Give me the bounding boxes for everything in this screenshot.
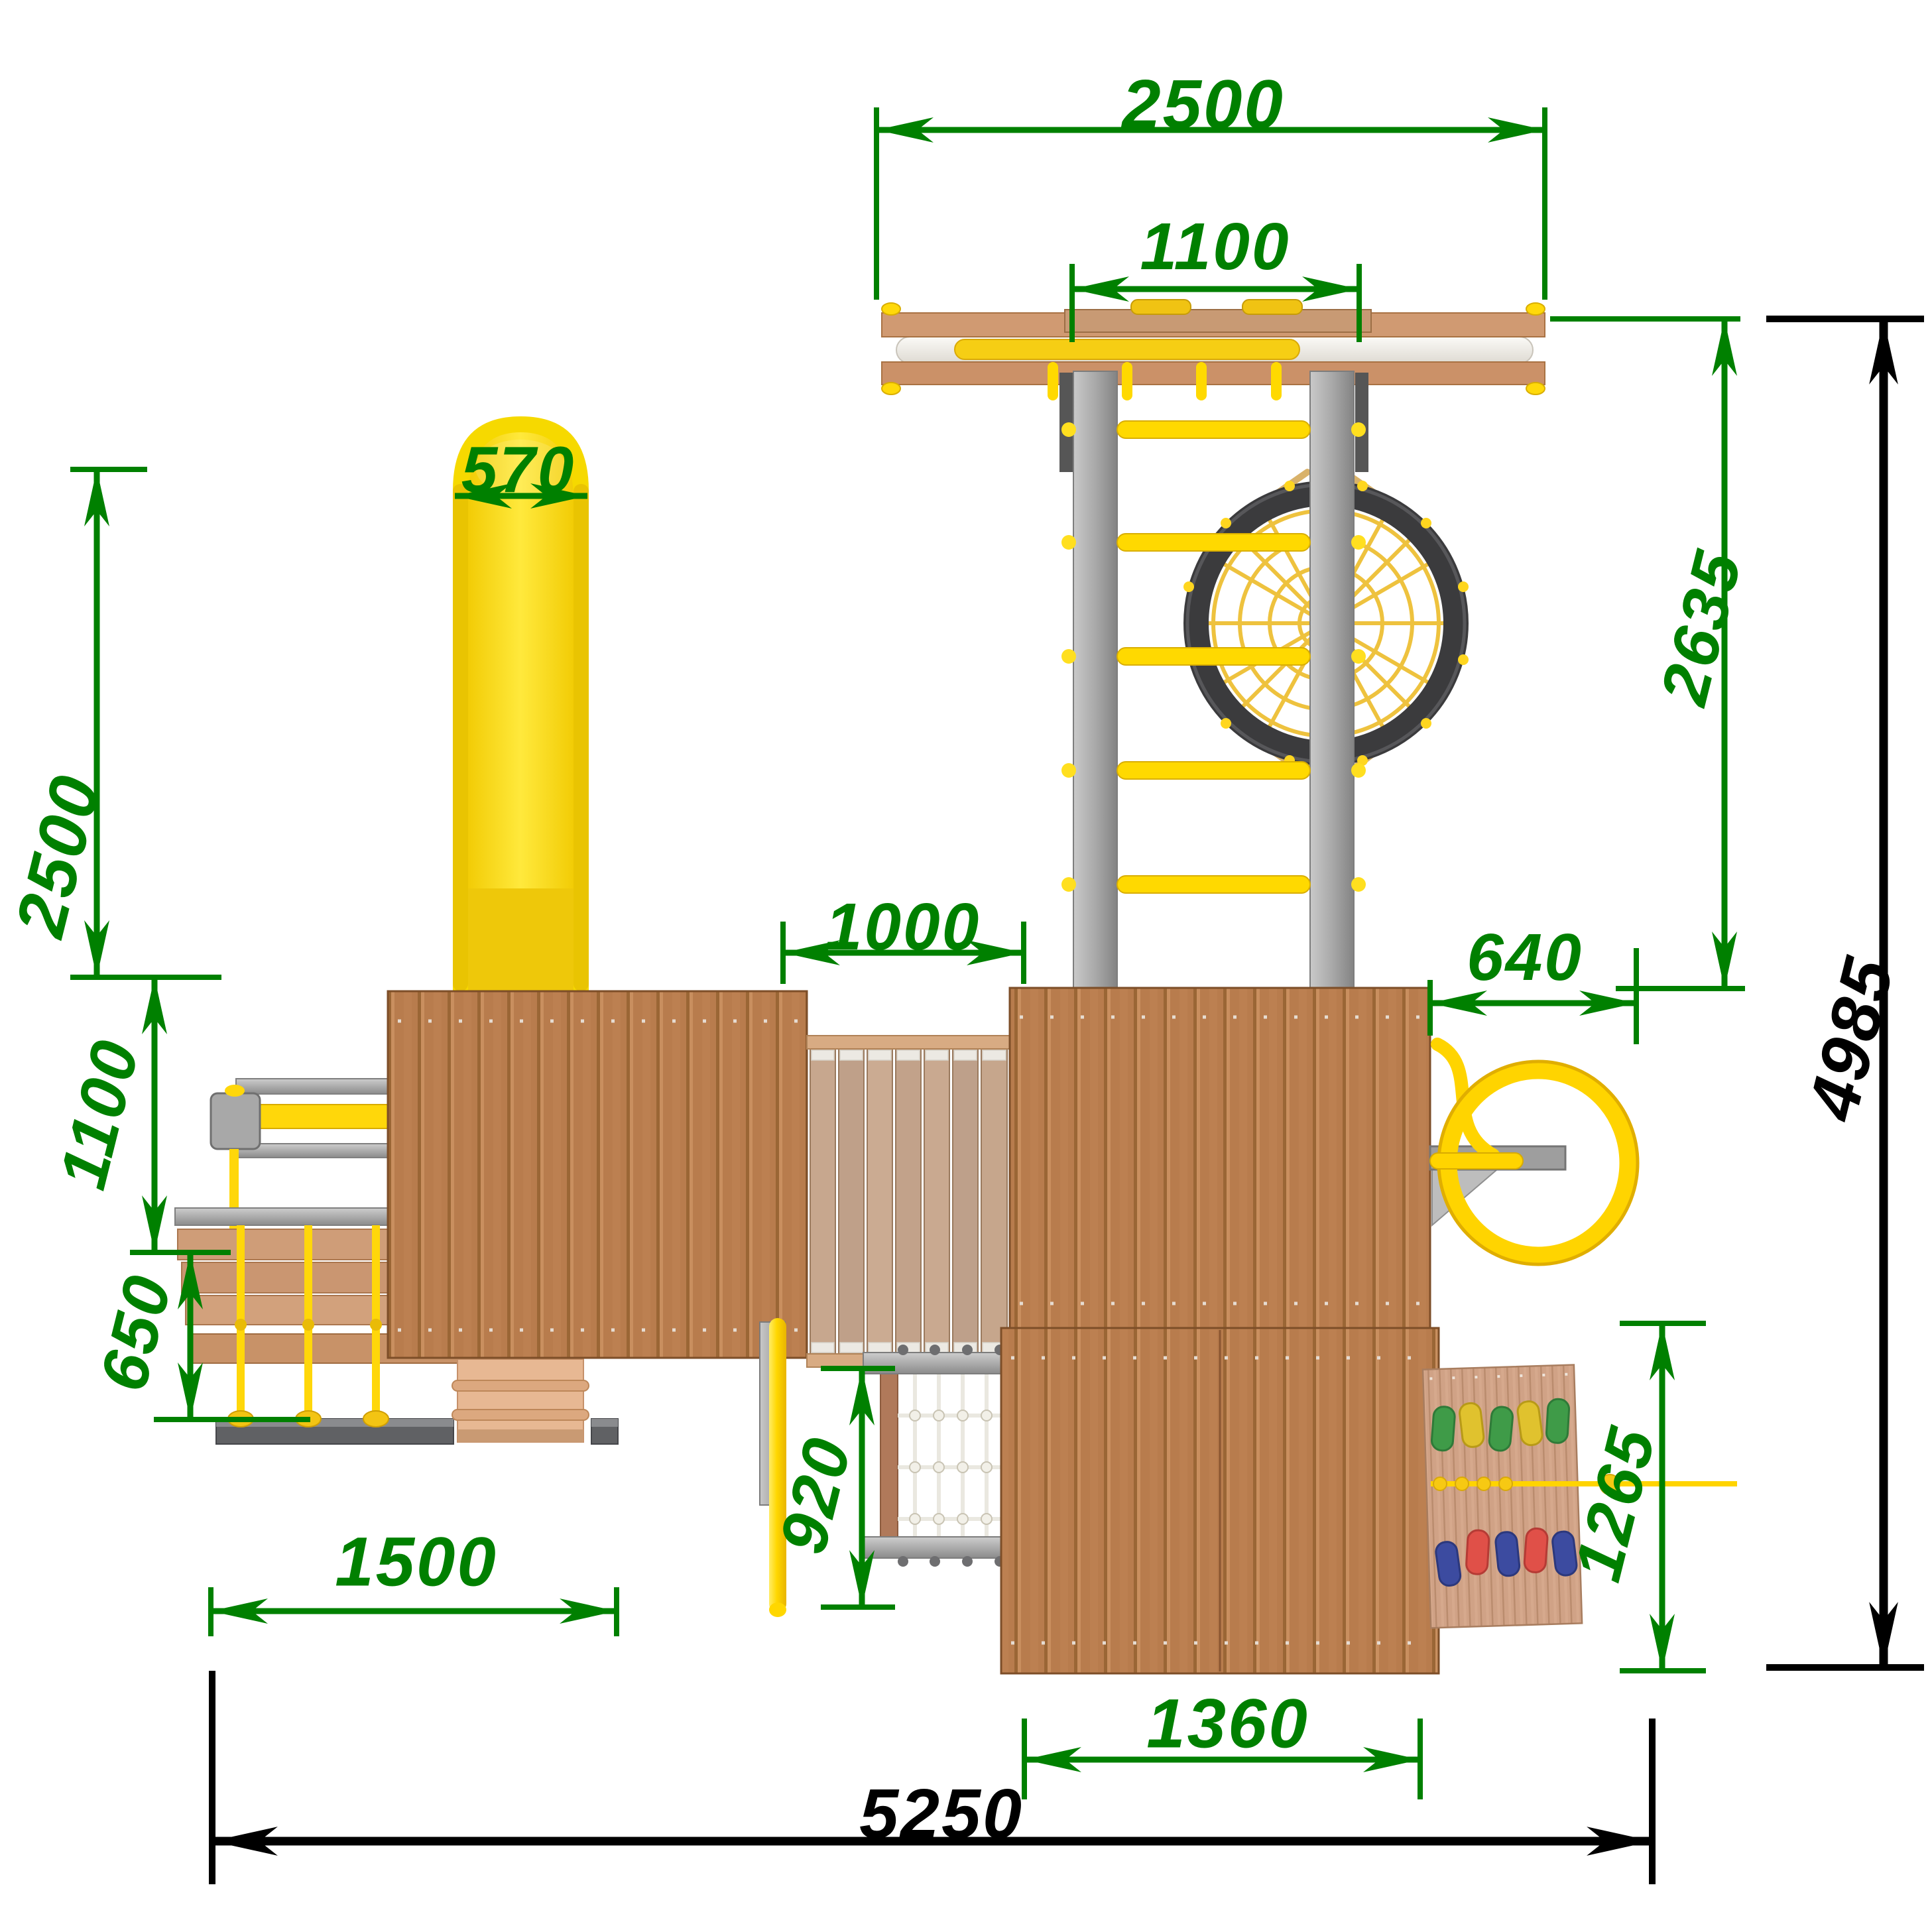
dimension-overall-width: 5250	[212, 1671, 1652, 1884]
fireman-pole	[760, 1318, 786, 1617]
dimension-left-depth: 2500	[1, 469, 147, 977]
dimension-label-ladder-depth: 2635	[1646, 543, 1756, 713]
ladder-top-rung	[955, 339, 1299, 359]
ramp-cleat	[452, 1380, 589, 1391]
swing-bracket-cap	[225, 1085, 245, 1097]
dimension-overall-depth: 4985	[1766, 319, 1924, 1667]
swing-frame-yellow-beam	[240, 1105, 406, 1128]
playground-top-view-drawing: 2500110057025001100650150010006402635498…	[0, 0, 1932, 1932]
bridge-planks	[810, 1049, 1007, 1354]
dimension-ladder-depth: 2635	[1550, 319, 1756, 989]
ladder-rail-right	[1310, 371, 1354, 989]
ramp-bottom-edge	[457, 1429, 583, 1442]
swing-beam-rail-back	[882, 362, 1545, 385]
dimension-swing-width: 1500	[211, 1524, 617, 1637]
dimension-label-overall-width: 5250	[859, 1775, 1024, 1853]
swing-beam-crossboard	[1065, 310, 1371, 332]
dimension-label-beam-width: 2500	[1120, 66, 1285, 144]
swing-frame-rail-top	[236, 1079, 408, 1094]
dimension-label-bridge-length: 1000	[825, 890, 981, 964]
left-tower-platform	[388, 991, 807, 1358]
right-lower-platform	[1001, 1328, 1439, 1673]
dimension-ring-offset: 640	[1430, 920, 1636, 1044]
ladder-bracket	[1355, 373, 1368, 472]
right-upper-platform	[1010, 988, 1430, 1333]
ladder-rail-left	[1073, 371, 1117, 989]
slide-rail-left	[453, 484, 468, 991]
dimension-tower-width: 1360	[1024, 1685, 1420, 1800]
dimension-label-ring-offset: 640	[1467, 920, 1583, 995]
slide-rail-right	[574, 484, 589, 991]
dimension-slide-width: 570	[455, 433, 587, 509]
swing-hanger-grip	[1131, 300, 1191, 314]
dimension-label-seat-offset: 650	[86, 1267, 186, 1398]
swing-hanger-grip	[1242, 300, 1302, 314]
ring-axle	[1430, 1153, 1523, 1169]
fireman-pole-tip	[769, 1602, 786, 1617]
ramp	[452, 1359, 589, 1442]
slide-bed-texture	[468, 888, 574, 991]
dimension-label-tower-width: 1360	[1146, 1685, 1309, 1763]
net-left-post	[880, 1374, 898, 1537]
drawing-stage: 2500110057025001100650150010006402635498…	[0, 0, 1932, 1932]
dimension-label-swing-depth: 1100	[45, 1032, 154, 1195]
fireman-pole-tube	[769, 1318, 786, 1612]
bridge-rail-top	[807, 1036, 1010, 1049]
swing-corner-bracket	[211, 1093, 260, 1149]
dimension-label-swing-width: 1500	[335, 1524, 498, 1601]
ramp-cleat	[452, 1410, 589, 1420]
dimension-bridge-length: 1000	[783, 890, 1024, 984]
swing-frame-rail-bottom	[236, 1144, 408, 1158]
ladder-bracket	[1059, 373, 1073, 472]
dimension-label-slide-width: 570	[461, 433, 576, 506]
swing-beam-assembly	[882, 300, 1545, 400]
dimension-label-overall-depth: 4985	[1793, 949, 1909, 1129]
steering-ring	[1430, 1044, 1638, 1264]
climbing-wall	[1423, 1364, 1582, 1628]
dimension-label-ladder-width: 1100	[1140, 210, 1290, 284]
bridge	[807, 1036, 1010, 1367]
